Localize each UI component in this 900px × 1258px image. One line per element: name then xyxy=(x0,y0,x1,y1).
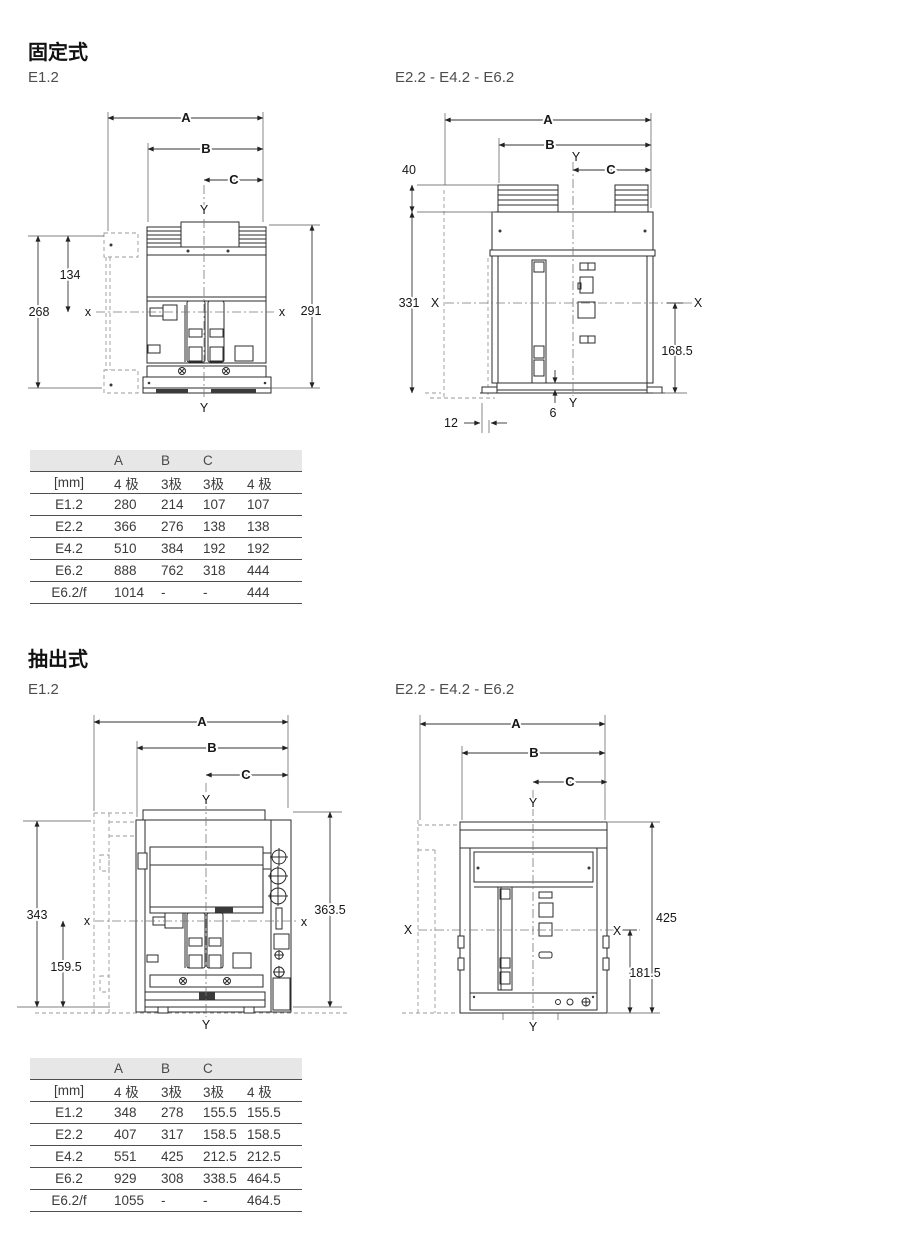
table-row: E6.2/f 1055 - - 464.5 xyxy=(30,1190,302,1212)
rear-projection xyxy=(425,190,495,398)
table-letter-row: A B C xyxy=(30,450,302,472)
value-cell: 192 xyxy=(241,538,302,560)
value-cell: 510 xyxy=(108,538,155,560)
table-corner-cell xyxy=(30,450,108,472)
drawing-label-wd-e12: E1.2 xyxy=(28,681,59,698)
value-cell: 464.5 xyxy=(241,1190,302,1212)
value-cell: 155.5 xyxy=(197,1102,241,1124)
unit-cell: 3极 xyxy=(155,1080,197,1102)
axis-label-x-left: X xyxy=(431,296,440,310)
row-label-cell: E4.2 xyxy=(30,1146,108,1168)
catalog-page: 固定式 E1.2 E2.2 - E4.2 - E6.2 xyxy=(0,0,900,1258)
value-cell: 888 xyxy=(108,560,155,582)
drawing-label-wd-e22: E2.2 - E4.2 - E6.2 xyxy=(395,681,514,698)
breaker-front-view xyxy=(480,185,665,393)
axis-label-x-left: x xyxy=(84,914,91,928)
door-projection xyxy=(402,820,460,1013)
col-letter-c: C xyxy=(197,450,241,472)
table-row: E2.2 366 276 138 138 xyxy=(30,516,302,538)
section-title-withdrawable: 抽出式 xyxy=(28,643,88,672)
value-cell: 317 xyxy=(155,1124,197,1146)
row-label-cell: E2.2 xyxy=(30,1124,108,1146)
value-cell: 138 xyxy=(197,516,241,538)
value-cell: 318 xyxy=(197,560,241,582)
dim-value-40: 40 xyxy=(402,163,416,177)
cradle-front-view xyxy=(136,810,291,1013)
dim-label-b: B xyxy=(529,745,538,760)
dim-label-c: C xyxy=(606,162,616,177)
table-corner-cell xyxy=(241,450,302,472)
drawing-withdrawable-e12: A B C Y Y x x 343 159.5 363.5 xyxy=(15,705,355,1045)
dim-label-a: A xyxy=(543,112,553,127)
cradle-front-view xyxy=(458,822,609,1020)
value-cell: 276 xyxy=(155,516,197,538)
value-cell: 212.5 xyxy=(241,1146,302,1168)
value-cell: 929 xyxy=(108,1168,155,1190)
value-cell: 308 xyxy=(155,1168,197,1190)
value-cell: 214 xyxy=(155,494,197,516)
dim-value-331: 331 xyxy=(399,296,420,310)
axis-label-y-top: Y xyxy=(202,793,211,807)
value-cell: 212.5 xyxy=(197,1146,241,1168)
value-cell: 425 xyxy=(155,1146,197,1168)
row-label-cell: E1.2 xyxy=(30,1102,108,1124)
section-title-fixed: 固定式 xyxy=(28,36,88,65)
axis-label-y-bottom: Y xyxy=(200,401,209,415)
table-row: E1.2 280 214 107 107 xyxy=(30,494,302,516)
dim-label-b: B xyxy=(201,141,210,156)
dim-label-a: A xyxy=(511,716,521,731)
axis-label-y-top: Y xyxy=(200,203,209,217)
dim-label-c: C xyxy=(241,767,251,782)
axis-label-y-bottom: Y xyxy=(529,1020,538,1034)
axis-label-y-top: Y xyxy=(572,150,581,164)
value-cell: 138 xyxy=(241,516,302,538)
unit-cell: [mm] xyxy=(30,472,108,494)
table-unit-row: [mm] 4 极 3极 3极 4 极 xyxy=(30,1080,302,1102)
dim-value-343: 343 xyxy=(27,908,48,922)
table-row: E6.2 888 762 318 444 xyxy=(30,560,302,582)
drawing-withdrawable-e22: A B C Y Y X X 425 181.5 xyxy=(390,700,710,1040)
col-letter-b: B xyxy=(155,1058,197,1080)
axis-label-x-right: x xyxy=(279,305,286,319)
table-row: E4.2 551 425 212.5 212.5 xyxy=(30,1146,302,1168)
col-letter-c: C xyxy=(197,1058,241,1080)
breaker-front-view xyxy=(143,222,271,393)
row-label-cell: E4.2 xyxy=(30,538,108,560)
table-row: E2.2 407 317 158.5 158.5 xyxy=(30,1124,302,1146)
value-cell: - xyxy=(197,1190,241,1212)
row-label-cell: E6.2/f xyxy=(30,1190,108,1212)
value-cell: 444 xyxy=(241,560,302,582)
axis-label-x-right: X xyxy=(613,924,622,938)
unit-cell: 3极 xyxy=(197,1080,241,1102)
dim-value-181-5: 181.5 xyxy=(629,966,660,980)
col-letter-b: B xyxy=(155,450,197,472)
value-cell: 1055 xyxy=(108,1190,155,1212)
axis-label-x-left: X xyxy=(404,923,413,937)
dim-label-c: C xyxy=(229,172,239,187)
value-cell: 107 xyxy=(241,494,302,516)
value-cell: 762 xyxy=(155,560,197,582)
value-cell: 192 xyxy=(197,538,241,560)
dim-value-134: 134 xyxy=(60,268,81,282)
dim-value-6: 6 xyxy=(550,406,557,420)
value-cell: 348 xyxy=(108,1102,155,1124)
axis-label-x-left: x xyxy=(85,305,92,319)
value-cell: 278 xyxy=(155,1102,197,1124)
dim-label-c: C xyxy=(565,774,575,789)
row-label-cell: E6.2 xyxy=(30,1168,108,1190)
dim-label-b: B xyxy=(545,137,554,152)
axis-label-y-bottom: Y xyxy=(569,396,578,410)
unit-cell: 3极 xyxy=(155,472,197,494)
table-row: E6.2 929 308 338.5 464.5 xyxy=(30,1168,302,1190)
unit-cell: 4 极 xyxy=(241,472,302,494)
dim-label-b: B xyxy=(207,740,216,755)
value-cell: 384 xyxy=(155,538,197,560)
value-cell: 107 xyxy=(197,494,241,516)
dim-value-363-5: 363.5 xyxy=(314,903,345,917)
unit-cell: 3极 xyxy=(197,472,241,494)
row-label-cell: E6.2/f xyxy=(30,582,108,604)
dim-value-268: 268 xyxy=(29,305,50,319)
table-corner-cell xyxy=(241,1058,302,1080)
value-cell: 155.5 xyxy=(241,1102,302,1124)
dim-label-a: A xyxy=(197,714,207,729)
value-cell: 1014 xyxy=(108,582,155,604)
value-cell: 551 xyxy=(108,1146,155,1168)
value-cell: 366 xyxy=(108,516,155,538)
table-corner-cell xyxy=(30,1058,108,1080)
fixed-dimensions-table: A B C [mm] 4 极 3极 3极 4 极 E1.2 280 214 10… xyxy=(30,450,302,604)
col-letter-a: A xyxy=(108,1058,155,1080)
unit-cell: 4 极 xyxy=(108,472,155,494)
value-cell: 444 xyxy=(241,582,302,604)
table-row: E1.2 348 278 155.5 155.5 xyxy=(30,1102,302,1124)
axis-label-x-right: x xyxy=(301,915,308,929)
dim-value-168-5: 168.5 xyxy=(661,344,692,358)
unit-cell: [mm] xyxy=(30,1080,108,1102)
row-label-cell: E1.2 xyxy=(30,494,108,516)
door-projection xyxy=(104,233,138,393)
value-cell: 338.5 xyxy=(197,1168,241,1190)
drawing-label-fixed-e12: E1.2 xyxy=(28,69,59,86)
value-cell: 407 xyxy=(108,1124,155,1146)
value-cell: 280 xyxy=(108,494,155,516)
unit-cell: 4 极 xyxy=(241,1080,302,1102)
dim-value-425: 425 xyxy=(656,911,677,925)
table-row: E4.2 510 384 192 192 xyxy=(30,538,302,560)
value-cell: 158.5 xyxy=(197,1124,241,1146)
table-row: E6.2/f 1014 - - 444 xyxy=(30,582,302,604)
axis-label-y-top: Y xyxy=(529,796,538,810)
dim-value-159-5: 159.5 xyxy=(50,960,81,974)
value-cell: - xyxy=(197,582,241,604)
table-letter-row: A B C xyxy=(30,1058,302,1080)
axis-label-y-bottom: Y xyxy=(202,1018,211,1032)
dim-value-12: 12 xyxy=(444,416,458,430)
col-letter-a: A xyxy=(108,450,155,472)
value-cell: 464.5 xyxy=(241,1168,302,1190)
row-label-cell: E2.2 xyxy=(30,516,108,538)
table-unit-row: [mm] 4 极 3极 3极 4 极 xyxy=(30,472,302,494)
row-label-cell: E6.2 xyxy=(30,560,108,582)
drawing-fixed-e12: A B C Y Y x x 134 268 291 xyxy=(28,105,340,430)
unit-cell: 4 极 xyxy=(108,1080,155,1102)
value-cell: - xyxy=(155,1190,197,1212)
dim-label-a: A xyxy=(181,110,191,125)
value-cell: 158.5 xyxy=(241,1124,302,1146)
axis-label-x-right: X xyxy=(694,296,703,310)
withdrawable-dimensions-table: A B C [mm] 4 极 3极 3极 4 极 E1.2 348 278 15… xyxy=(30,1058,302,1212)
value-cell: - xyxy=(155,582,197,604)
dim-value-291: 291 xyxy=(301,304,322,318)
drawing-label-fixed-e22: E2.2 - E4.2 - E6.2 xyxy=(395,69,514,86)
drawing-fixed-e22: A B C Y Y X X 40 331 168.5 6 12 xyxy=(395,100,720,445)
